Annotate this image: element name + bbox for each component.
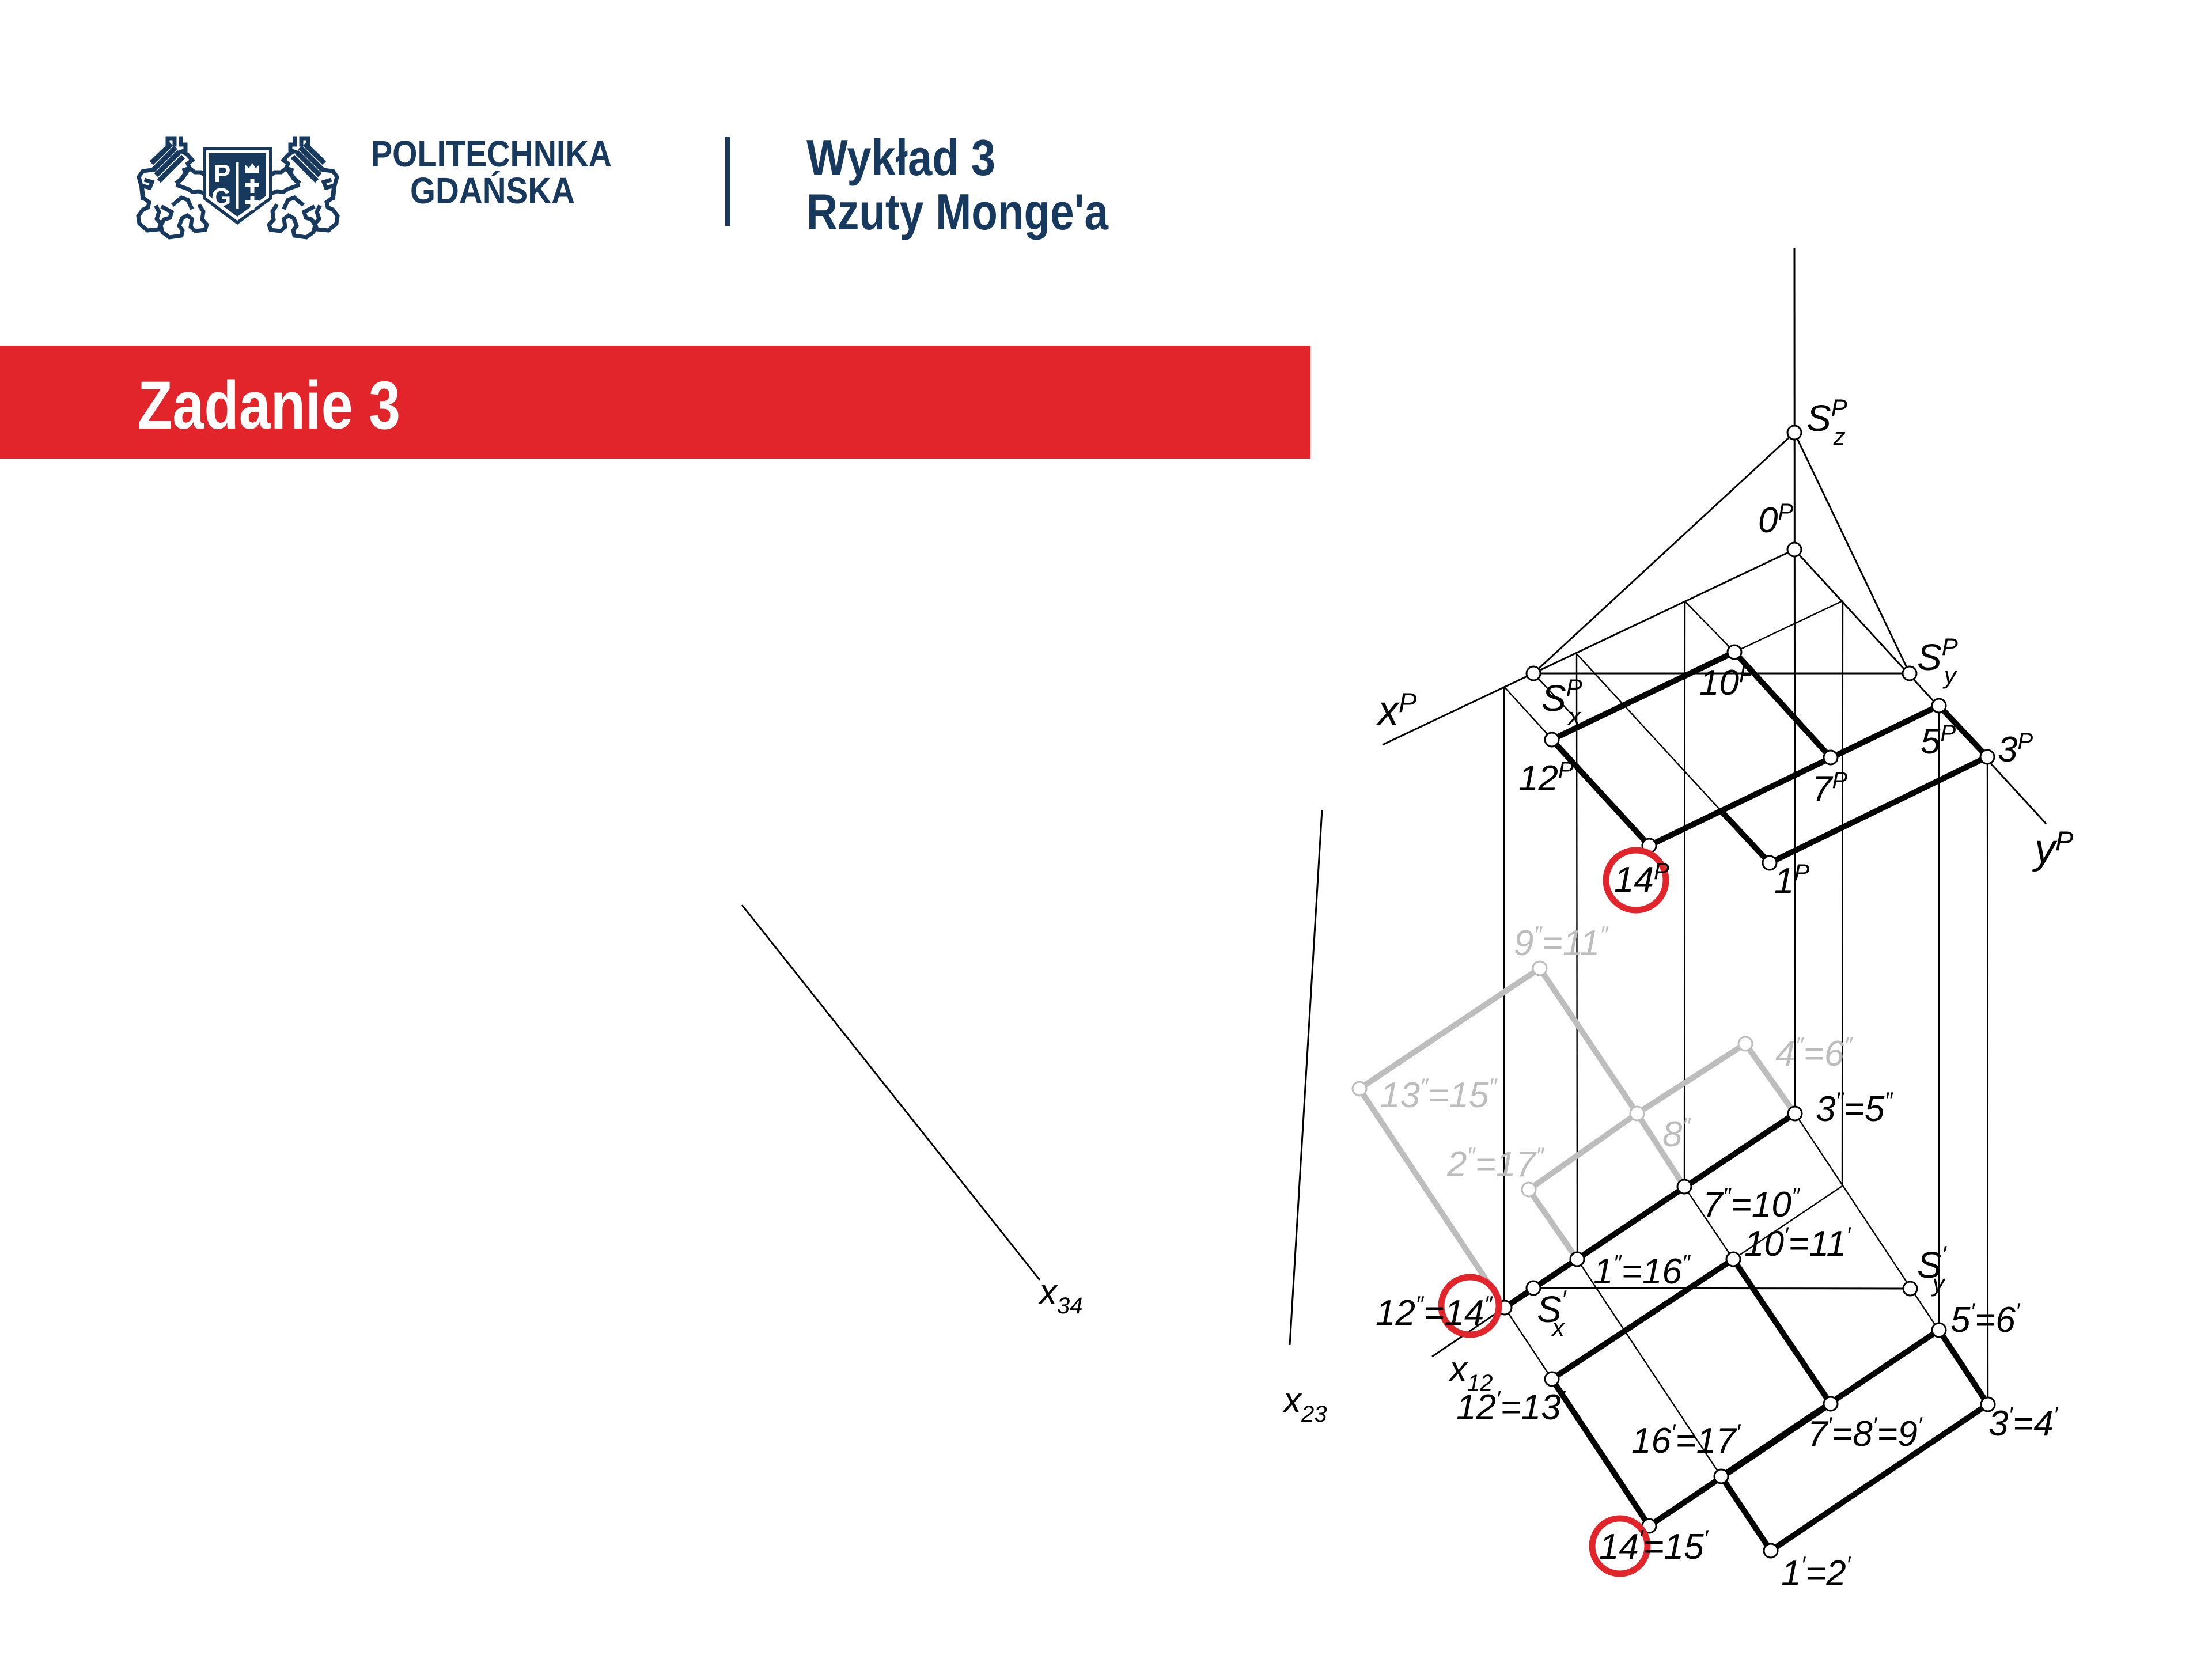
svg-text:7′=8′=9′: 7′=8′=9′	[1808, 1413, 1923, 1454]
svg-text:7″=10″: 7″=10″	[1703, 1184, 1801, 1225]
svg-text:1″=16″: 1″=16″	[1593, 1251, 1691, 1291]
svg-text:G: G	[211, 183, 231, 211]
svg-text:10′=11′: 10′=11′	[1744, 1223, 1851, 1264]
svg-text:Rzuty Monge'a: Rzuty Monge'a	[806, 183, 1109, 240]
svg-text:2″=17″: 2″=17″	[1446, 1143, 1545, 1184]
svg-text:POLITECHNIKA: POLITECHNIKA	[371, 133, 612, 175]
svg-text:12″=14″: 12″=14″	[1376, 1292, 1493, 1333]
svg-text:16′=17′: 16′=17′	[1631, 1420, 1741, 1461]
svg-text:Zadanie 3: Zadanie 3	[138, 368, 400, 444]
svg-text:GDAŃSKA: GDAŃSKA	[410, 170, 575, 211]
svg-text:14′=15′: 14′=15′	[1599, 1526, 1709, 1567]
svg-text:13″=15″: 13″=15″	[1380, 1074, 1498, 1115]
svg-text:3′=4′: 3′=4′	[1988, 1403, 2059, 1444]
svg-text:3″=5″: 3″=5″	[1816, 1088, 1893, 1129]
svg-text:9″=11″: 9″=11″	[1514, 922, 1609, 963]
svg-text:Wykład 3: Wykład 3	[806, 129, 995, 186]
svg-text:4″=6″: 4″=6″	[1775, 1033, 1853, 1074]
svg-text:1′=2′: 1′=2′	[1781, 1552, 1851, 1593]
svg-text:5′=6′: 5′=6′	[1950, 1299, 2021, 1340]
